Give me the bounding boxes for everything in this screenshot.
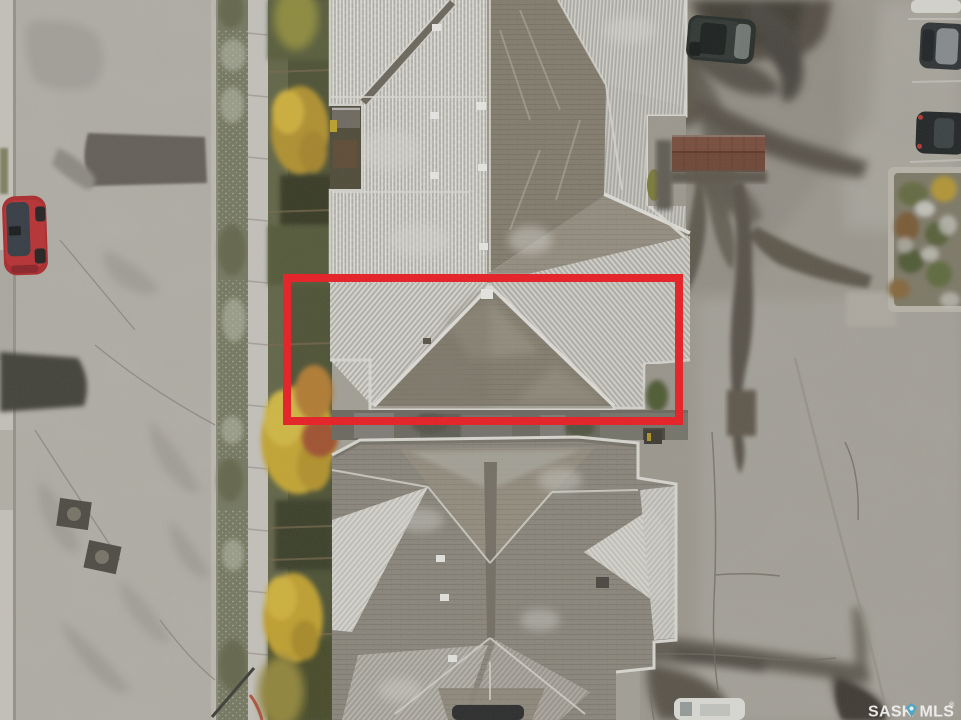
- svg-text:SASK: SASK: [868, 704, 914, 720]
- svg-text:®: ®: [949, 701, 955, 709]
